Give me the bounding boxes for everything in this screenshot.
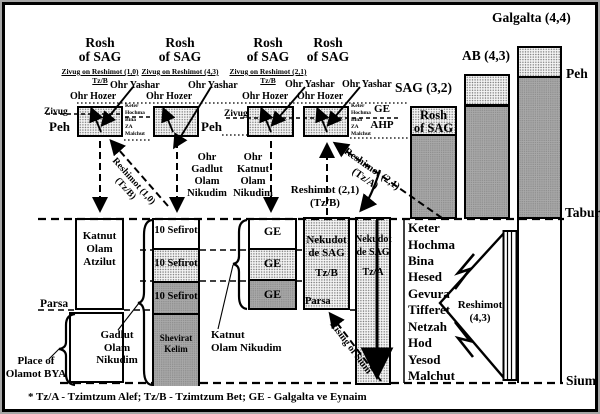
reshimot-21b-label: Reshimot (2,1)(Tz/B) [288, 184, 362, 209]
sefira-netzah: Netzah [408, 320, 447, 334]
sefirot10-label-1: 10 Sefirot [152, 225, 200, 236]
ohr-hozer-label-3: Ohr Hozer [242, 92, 288, 103]
ge-col-label-1: GE [248, 225, 297, 238]
peh-label-1: Peh [49, 120, 70, 134]
zivug-label-2: Zivug [224, 110, 248, 120]
nekudot-a-line3: Tz/A [355, 268, 391, 279]
kabbalah-worlds-diagram: Rosh of SAG [0, 0, 600, 414]
rosh-sag-box-2 [153, 106, 199, 137]
reshimot-43-line2: (4,3) [452, 313, 508, 325]
katnut-olam-nikudim-label: KatnutOlam Nikudim [211, 329, 282, 354]
ahp-label: AHP [364, 120, 400, 132]
rosh-header-2: Roshof SAG [135, 36, 225, 64]
galgalta-sof [517, 219, 562, 383]
shevirat-kelim-label: Shevirat Kelim [152, 333, 200, 355]
ohr-yashar-label-1: Ohr Yashar [110, 81, 160, 92]
galgalta-body [517, 76, 562, 219]
ohr-hozer-label-4: Ohr Hozer [297, 92, 343, 103]
sefira-gevura: Gevura [408, 287, 450, 301]
sag-rosh-box: Rosh of SAG [410, 106, 457, 136]
parsa-label-tzb: Parsa [305, 296, 331, 307]
ge-col-label-3: GE [248, 288, 297, 301]
zivug-label-1: Zivug [44, 108, 68, 118]
ge-col-label-2: GE [248, 257, 297, 270]
ge-label: GE [366, 104, 398, 116]
sefirot10-label-3: 10 Sefirot [152, 291, 200, 302]
nekudot-b-line2: de SAG [303, 248, 350, 260]
sefira-bina: Bina [408, 254, 434, 268]
mini-sefirot-1: KeterHochma BinaZA Malchut [125, 103, 145, 138]
galgalta-rosh [517, 46, 562, 79]
rosh-sag-box-4 [303, 106, 349, 137]
ohr-yashar-label-4: Ohr Yashar [342, 80, 392, 91]
rosh-sag-box-1 [77, 106, 123, 137]
rosh-sub-3a: Zivug on Reshimot (2,1) [218, 67, 318, 76]
peh-marker-right: Peh [566, 67, 588, 81]
ohr-katnut-label: OhrKatnut OlamNikudim [228, 152, 278, 200]
galgalta-label: Galgalta (4,4) [492, 11, 571, 25]
nekudot-a-line1: Nekudot [355, 235, 391, 246]
tabur-marker: Tabur [565, 206, 600, 220]
rosh-sag-box-3 [247, 106, 294, 137]
katnut-olam-atzilut-label: Katnut Olam Atzilut [75, 230, 124, 269]
ab-label: AB (4,3) [462, 49, 510, 63]
gadlut-olam-nikudim-label: GadlutOlam Nikudim [91, 329, 143, 367]
ohr-hozer-label-1: Ohr Hozer [70, 92, 116, 103]
place-of-olamot-bya-label: Place ofOlamot BYA [3, 355, 69, 380]
sefira-hesed: Hesed [408, 270, 442, 284]
ab-body [464, 105, 510, 219]
nekudot-b-line1: Nekudot [303, 235, 350, 247]
ohr-yashar-label-3: Ohr Yashar [285, 80, 335, 91]
sefira-yesod: Yesod [408, 353, 441, 367]
sefira-hod: Hod [408, 336, 432, 350]
sefirot10-label-2: 10 Sefirot [152, 258, 200, 269]
sium-marker: Sium [566, 374, 596, 388]
rosh-sub-2a: Zivug on Reshimot (4,3) [130, 67, 230, 76]
reshimot-43-line1: Reshimot [452, 300, 508, 312]
ohr-yashar-label-2: Ohr Yashar [188, 81, 238, 92]
sefira-tifferet: Tifferet [408, 303, 450, 317]
sag-body [410, 134, 457, 219]
nekudot-a-line2: de SAG [355, 248, 391, 259]
sefira-malchut: Malchut [408, 369, 455, 383]
peh-label-2: Peh [201, 120, 222, 134]
sefira-keter: Keter [408, 221, 440, 235]
rosh-header-1: Roshof SAG [55, 36, 145, 64]
ohr-gadlut-label: OhrGadlut OlamNikudim [181, 152, 233, 200]
nekudot-b-line3: Tz/B [303, 268, 350, 280]
ab-rosh [464, 74, 510, 107]
ohr-hozer-label-2: Ohr Hozer [146, 92, 192, 103]
sag-label: SAG (3,2) [395, 81, 452, 95]
rosh-header-4: Roshof SAG [283, 36, 373, 64]
sefira-hochma: Hochma [408, 238, 455, 252]
parsa-label-left: Parsa [40, 298, 68, 310]
footnote-legend: * Tz/A - Tzimtzum Alef; Tz/B - Tzimtzum … [28, 392, 367, 404]
